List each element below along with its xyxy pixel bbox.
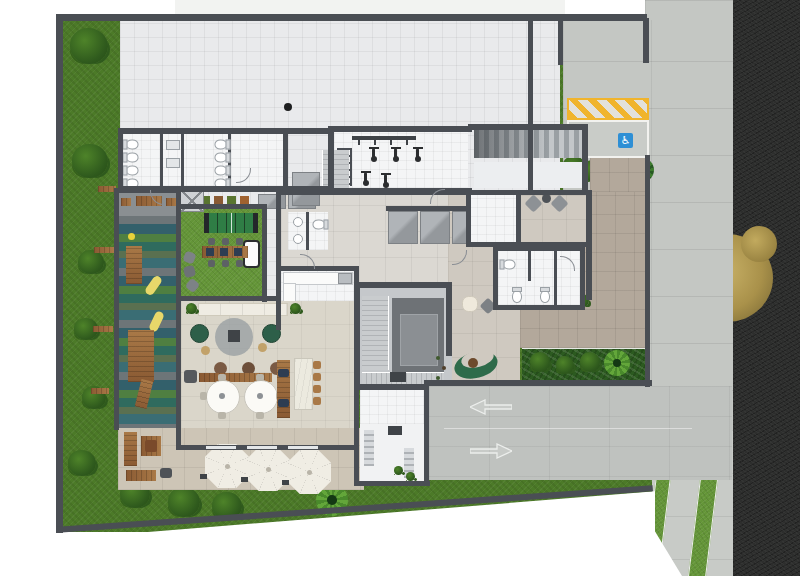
building-east-wall	[586, 190, 592, 300]
gym-wall-left	[328, 126, 334, 194]
games-chair	[222, 238, 229, 245]
gym-rack-hook	[374, 140, 376, 145]
games-chair	[222, 260, 229, 267]
kitchen-wall-top	[276, 266, 358, 271]
gym-rack-hook	[390, 140, 392, 145]
restroom-partition	[181, 134, 184, 186]
lobby-armchair	[462, 296, 478, 312]
lounge-glass-door	[288, 446, 318, 449]
toilet-icon	[512, 290, 522, 303]
driveway-entry	[645, 0, 733, 20]
garden-bush	[78, 250, 104, 274]
patio-umbrella	[287, 450, 331, 494]
lounge-glass-door	[247, 446, 277, 449]
games-table-top	[220, 248, 228, 256]
playground-bench	[121, 198, 131, 206]
storage-plant	[394, 466, 403, 475]
patio-pouf	[160, 468, 172, 478]
patio-cushion	[145, 440, 157, 452]
exercise-bike-icon	[394, 148, 397, 160]
shower-sink	[166, 158, 180, 168]
building-wall	[176, 188, 181, 450]
garage-door-wall	[424, 382, 429, 484]
play-ball	[128, 233, 135, 240]
umbrella-base	[200, 474, 207, 479]
mail-room	[468, 194, 516, 244]
bar-stool	[278, 369, 289, 377]
bathroom-partition	[528, 251, 531, 281]
games-chair	[208, 238, 215, 245]
toilet-icon	[126, 153, 139, 163]
garden-bench	[93, 326, 113, 332]
lobby-table	[542, 194, 551, 203]
coffee-pouf	[468, 358, 478, 368]
lounge-wall-top	[176, 296, 280, 301]
umbrella-base	[241, 477, 248, 482]
bath-block-wall-e	[580, 246, 585, 310]
bath-block-wall-n	[493, 246, 585, 251]
ramp-center-line	[444, 428, 692, 429]
sink-icon	[293, 234, 303, 244]
bed-shrub	[556, 356, 574, 374]
lounge-glass-door	[206, 446, 236, 449]
ramp-room-wall-right	[582, 124, 588, 192]
toilet-icon	[126, 140, 139, 150]
umbrella-base	[282, 480, 289, 485]
dining-chair	[256, 374, 264, 381]
gym-rack-hook	[406, 140, 408, 145]
drive-wall-west	[558, 15, 563, 65]
dining-chair	[256, 412, 264, 419]
drive-wall-stub	[643, 18, 649, 63]
games-chair	[236, 238, 243, 245]
bed-shrub	[530, 352, 550, 372]
toilet-icon	[215, 140, 228, 150]
core-wall-e	[446, 282, 452, 356]
site-wall-left	[56, 14, 63, 533]
garden-tree	[70, 28, 108, 64]
bar-stool	[278, 399, 289, 407]
garden-bench	[94, 247, 114, 253]
stair-flight-west	[362, 296, 389, 370]
toilet-icon	[215, 153, 228, 163]
corridor-wall-bottom	[354, 481, 430, 486]
games-table-top	[234, 248, 242, 256]
plaza-column	[284, 103, 292, 111]
bathroom-partition	[554, 251, 557, 305]
table-centerpiece	[219, 393, 225, 399]
island-table	[294, 358, 313, 410]
restroom-wall-right	[283, 128, 288, 190]
exercise-bike-icon	[416, 148, 419, 160]
fridge	[338, 273, 352, 284]
playground-wall	[114, 188, 119, 430]
garden-bush	[68, 450, 96, 476]
garden-bush-row	[168, 487, 200, 517]
games-chair	[236, 260, 243, 267]
kitchen-wall-left	[276, 266, 281, 330]
plaza-east-wall	[528, 20, 533, 192]
lounge-sofa	[198, 303, 288, 316]
elevator-car	[420, 211, 450, 244]
dining-chair	[218, 374, 226, 381]
storage-shelf	[364, 430, 374, 466]
toilet-icon	[540, 290, 550, 303]
lounge-plant	[186, 303, 197, 314]
storage-box	[388, 426, 402, 435]
lobby-wall-top	[466, 190, 471, 246]
no-parking-hatch	[567, 98, 649, 120]
garden-tree	[72, 144, 108, 178]
terrace-edge-wall	[645, 155, 650, 387]
margin-left	[0, 0, 56, 576]
restrooms	[123, 134, 283, 186]
entry-mat	[390, 372, 406, 382]
exercise-bike-icon	[364, 172, 367, 184]
lounge-plant	[290, 303, 301, 314]
patio-lounger	[124, 432, 137, 466]
exercise-bike-icon	[384, 174, 387, 186]
hall-wall-west	[276, 190, 281, 268]
offsite-strip	[175, 0, 565, 14]
margin-top-left	[0, 0, 175, 14]
play-structure	[128, 330, 154, 382]
side-pouf	[184, 370, 197, 383]
toilet-icon	[313, 220, 326, 230]
wheelchair-icon: ♿	[618, 133, 633, 148]
ramp-arrow-left-icon	[470, 399, 512, 415]
coffee-table	[228, 330, 240, 342]
toilet-icon	[215, 166, 228, 176]
ramp-top-wall	[424, 380, 652, 386]
corridor-wall-left	[354, 388, 359, 484]
floor-plan-scene: ♿	[0, 0, 800, 576]
restroom-partition	[160, 134, 163, 186]
ramp-arrow-right-icon	[470, 443, 512, 459]
games-room-wall-top	[178, 204, 266, 209]
gym-rack-hook	[358, 140, 360, 145]
playground-bench	[166, 198, 176, 206]
restroom-wall-top	[118, 128, 330, 134]
gym	[334, 132, 468, 188]
island-chair	[313, 361, 321, 369]
storage-plant	[406, 472, 415, 481]
restroom-wall-left	[118, 128, 123, 190]
games-table-top	[206, 248, 214, 256]
margin-top-mid	[565, 0, 645, 14]
bath-block-wall-s	[493, 305, 585, 310]
service-corridor	[360, 390, 424, 424]
games-room-wall-right	[262, 204, 267, 302]
dining-chair	[200, 392, 207, 400]
bed-palm	[604, 350, 630, 376]
play-structure	[126, 246, 142, 284]
sink-icon	[293, 217, 303, 227]
dining-chair	[218, 412, 226, 419]
gym-wall-top	[328, 126, 472, 132]
table-centerpiece	[257, 393, 263, 399]
patio-bench	[126, 470, 156, 481]
lounge-pouf	[201, 346, 210, 355]
foosball-table	[204, 213, 258, 233]
leaf-decal	[436, 356, 440, 360]
lounge-armchair	[190, 324, 209, 343]
lobby-wall-mid	[516, 192, 521, 246]
bed-shrub	[580, 352, 600, 372]
bath-block-wall-w	[493, 246, 498, 310]
wheelchair-glyph: ♿	[621, 133, 631, 148]
island-chair	[313, 397, 321, 405]
island-chair	[313, 385, 321, 393]
island-chair	[313, 373, 321, 381]
toilet-icon	[503, 260, 516, 270]
lounge-pouf	[258, 343, 267, 352]
core-wall-n	[354, 282, 452, 288]
terrace-walkway	[590, 158, 645, 192]
garden-bench	[91, 388, 109, 394]
elevator-cab	[400, 314, 438, 366]
games-chair	[208, 260, 215, 267]
elevator-car	[388, 211, 418, 244]
toilet-icon	[126, 166, 139, 176]
exercise-bike-icon	[372, 148, 375, 160]
shower-sink	[166, 140, 180, 150]
street-tree-canopy-blob	[741, 226, 777, 262]
leaf-decal	[442, 366, 446, 370]
washroom-partition	[306, 212, 309, 250]
